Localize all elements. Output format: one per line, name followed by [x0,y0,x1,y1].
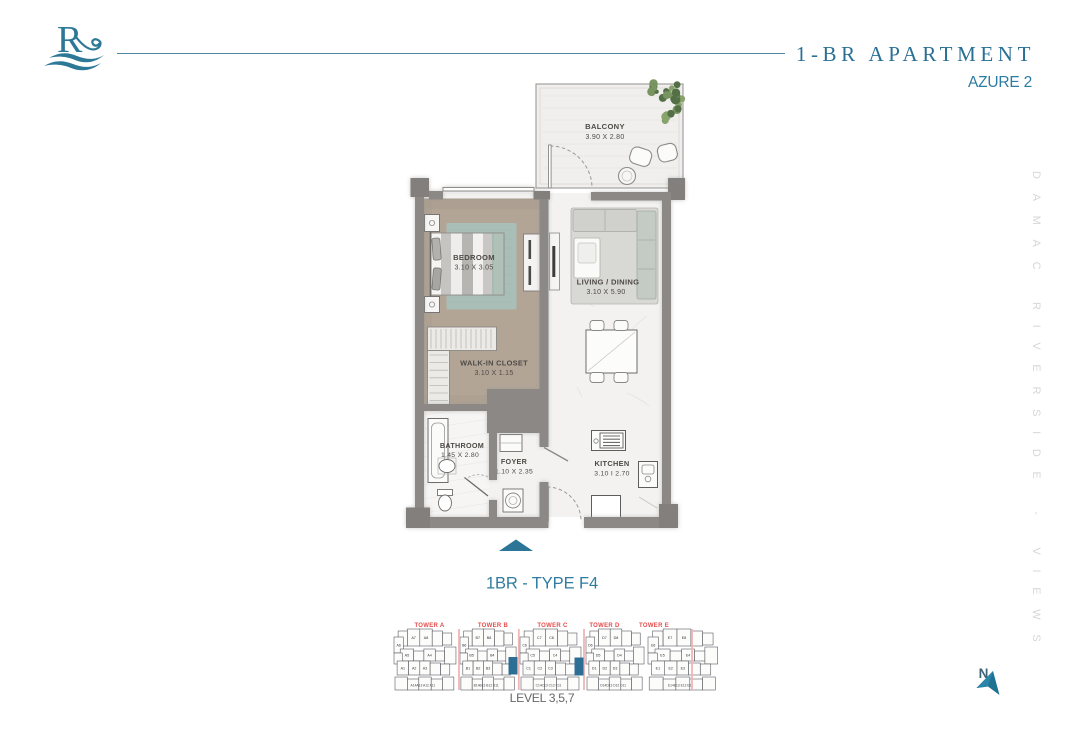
svg-text:TOWER C: TOWER C [537,623,568,629]
svg-text:C7: C7 [537,636,542,640]
svg-text:E7: E7 [668,636,673,640]
svg-text:E1: E1 [656,666,660,670]
svg-text:B3: B3 [486,666,490,670]
svg-text:A5: A5 [405,653,410,657]
svg-text:D1: D1 [592,666,597,670]
svg-text:A2: A2 [412,666,416,670]
svg-text:E5: E5 [660,653,665,657]
svg-text:E6: E6 [651,643,655,647]
svg-text:B1: B1 [466,666,470,670]
svg-text:A1: A1 [401,666,405,670]
svg-text:B14B13 B12 B11: B14B13 B12 B11 [474,684,499,688]
svg-text:BALCONY: BALCONY [585,122,625,131]
svg-text:3.10 I 2.70: 3.10 I 2.70 [594,471,629,478]
svg-text:C4: C4 [553,653,558,657]
svg-text:C5: C5 [530,653,535,657]
svg-text:C6: C6 [522,643,527,647]
svg-text:3.90 X 2.80: 3.90 X 2.80 [585,134,624,141]
svg-text:1BR - TYPE F4: 1BR - TYPE F4 [486,575,598,593]
svg-text:A8: A8 [424,636,429,640]
svg-text:FOYER: FOYER [501,457,528,466]
svg-text:D14D13 D12 D11: D14D13 D12 D11 [600,684,626,688]
svg-text:B2: B2 [476,666,480,670]
svg-text:KITCHEN: KITCHEN [595,459,630,468]
svg-text:TOWER B: TOWER B [478,623,509,629]
svg-text:D2: D2 [603,666,608,670]
svg-text:TOWER E: TOWER E [639,623,669,629]
svg-text:D5: D5 [596,653,601,657]
svg-text:E4: E4 [686,653,690,657]
svg-text:LIVING / DINING: LIVING / DINING [577,278,640,287]
svg-text:1.45 X 2.80: 1.45 X 2.80 [441,452,479,459]
svg-text:C8: C8 [549,636,554,640]
svg-text:3.10 X 3.05: 3.10 X 3.05 [454,265,493,272]
svg-text:LEVEL 3,5,7: LEVEL 3,5,7 [510,691,575,705]
svg-text:A3: A3 [423,666,427,670]
svg-text:D7: D7 [602,636,607,640]
svg-text:C2: C2 [537,666,542,670]
svg-text:TOWER D: TOWER D [589,623,620,629]
svg-text:1.10 X 2.35: 1.10 X 2.35 [495,469,533,476]
svg-text:B8: B8 [487,636,492,640]
svg-text:A7: A7 [411,636,416,640]
svg-text:D4: D4 [617,653,622,657]
svg-text:A6: A6 [397,643,401,647]
svg-text:A4: A4 [427,653,431,657]
svg-text:D6: D6 [588,643,593,647]
svg-text:B6: B6 [462,643,466,647]
svg-text:E8: E8 [682,636,687,640]
svg-text:3.10 X 1.15: 3.10 X 1.15 [474,370,513,377]
svg-text:C3: C3 [548,666,553,670]
svg-text:B7: B7 [476,636,481,640]
svg-text:BEDROOM: BEDROOM [453,253,495,262]
svg-text:C14C13 C12 C11: C14C13 C12 C11 [536,684,562,688]
svg-text:D3: D3 [613,666,618,670]
svg-text:E3: E3 [681,666,685,670]
svg-text:E2: E2 [668,666,672,670]
svg-text:D8: D8 [614,636,619,640]
svg-text:3.10 X 5.90: 3.10 X 5.90 [586,289,625,296]
svg-text:C1: C1 [526,666,531,670]
svg-text:B5: B5 [469,653,474,657]
svg-text:TOWER A: TOWER A [414,623,444,629]
svg-text:A14A13 A12 A11: A14A13 A12 A11 [411,684,436,688]
svg-text:E14E13 E12 E11: E14E13 E12 E11 [668,684,693,688]
svg-text:WALK-IN CLOSET: WALK-IN CLOSET [460,359,528,368]
svg-text:BATHROOM: BATHROOM [440,441,484,450]
svg-text:B4: B4 [490,653,494,657]
